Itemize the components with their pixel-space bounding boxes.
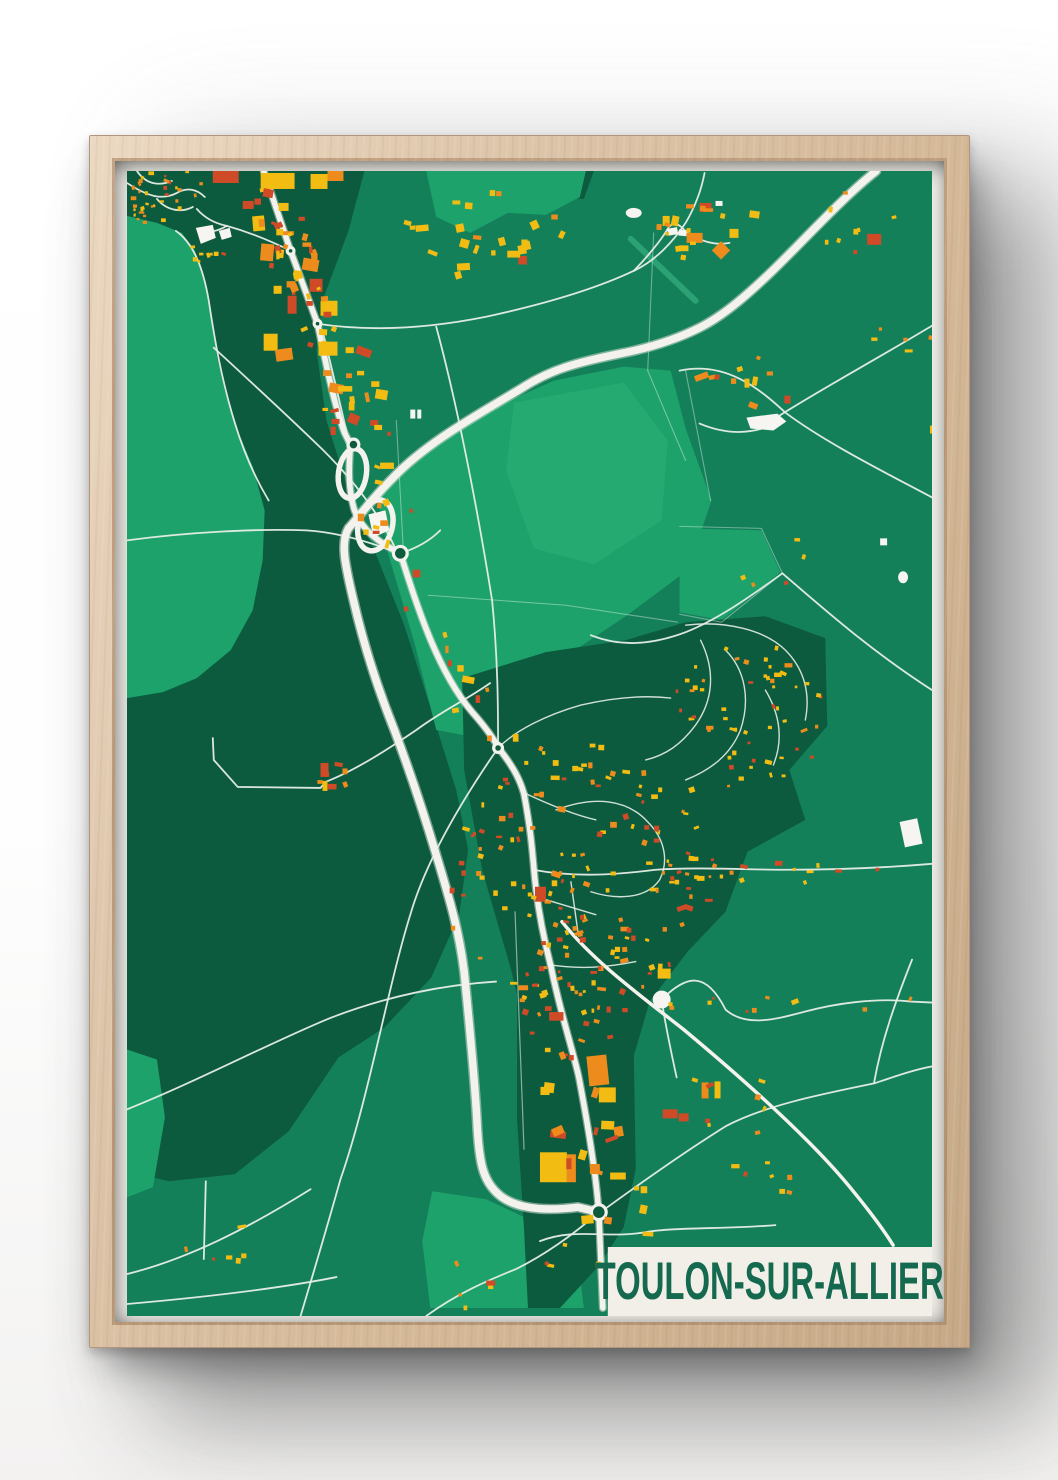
picture-frame: TOULON-SUR-ALLIER xyxy=(89,135,970,1348)
map-poster: TOULON-SUR-ALLIER xyxy=(115,161,944,1322)
title-band: TOULON-SUR-ALLIER xyxy=(608,1247,932,1316)
wall: TOULON-SUR-ALLIER xyxy=(0,0,1058,1480)
map-area: TOULON-SUR-ALLIER xyxy=(127,171,932,1316)
poster-title: TOULON-SUR-ALLIER xyxy=(596,1255,944,1308)
city-map-graphic xyxy=(127,171,932,1316)
frame-inner-bevel: TOULON-SUR-ALLIER xyxy=(112,158,947,1325)
